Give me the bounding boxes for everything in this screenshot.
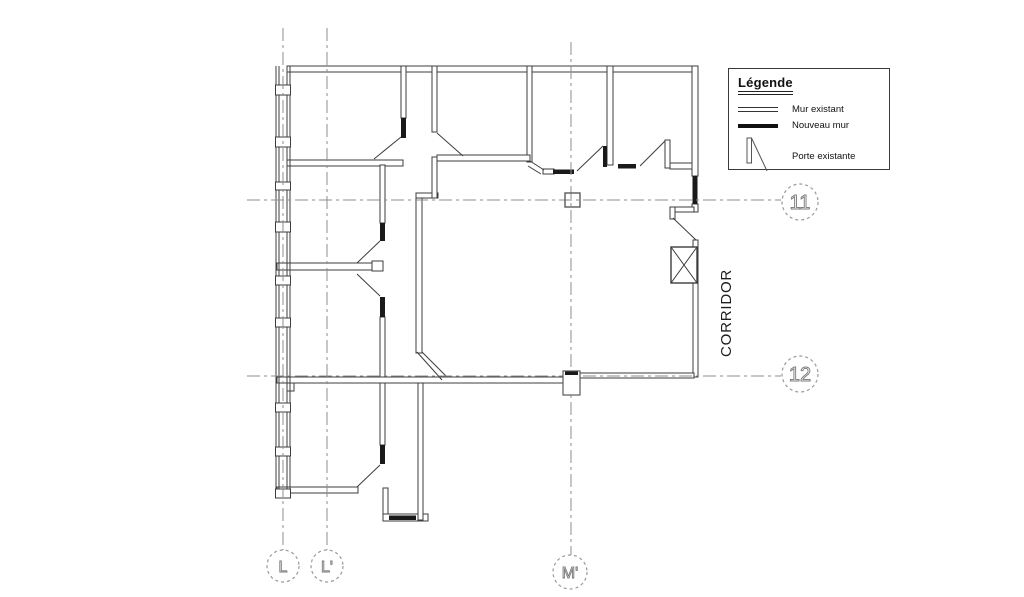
existing-door-icon (738, 136, 778, 177)
grid-bubble-L-prime-label: L' (321, 559, 333, 576)
legend-item-label: Mur existant (792, 104, 844, 115)
legend-item-existing-door: Porte existante (738, 136, 880, 177)
legend-item-existing-wall: Mur existant (738, 104, 880, 115)
grid-bubble-12-label: 12 (789, 364, 811, 386)
new-walls (380, 118, 698, 520)
grid-bubble-L-label: L (279, 559, 288, 576)
shaft-x-symbol (671, 247, 697, 283)
legend-title: Légende (738, 75, 793, 95)
grid-bubbles: 11 12 L L' M' (267, 184, 818, 589)
grid-lines (247, 28, 781, 555)
existing-walls (277, 66, 698, 521)
legend-item-label: Porte existante (792, 151, 855, 162)
grid-bubble-M-prime-label: M' (562, 565, 578, 582)
existing-wall-icon (738, 107, 778, 112)
legend-item-label: Nouveau mur (792, 120, 849, 131)
legend-panel: Légende Mur existant Nouveau mur Porte e… (728, 68, 890, 170)
legend-item-new-wall: Nouveau mur (738, 120, 880, 131)
new-wall-icon (738, 124, 778, 128)
floor-plan-page: 11 12 L L' M' CORRIDOR Légende Mur exist… (0, 0, 1024, 597)
corridor-label: CORRIDOR (718, 269, 735, 357)
door-swings (357, 133, 696, 487)
grid-bubble-11-label: 11 (790, 192, 811, 214)
